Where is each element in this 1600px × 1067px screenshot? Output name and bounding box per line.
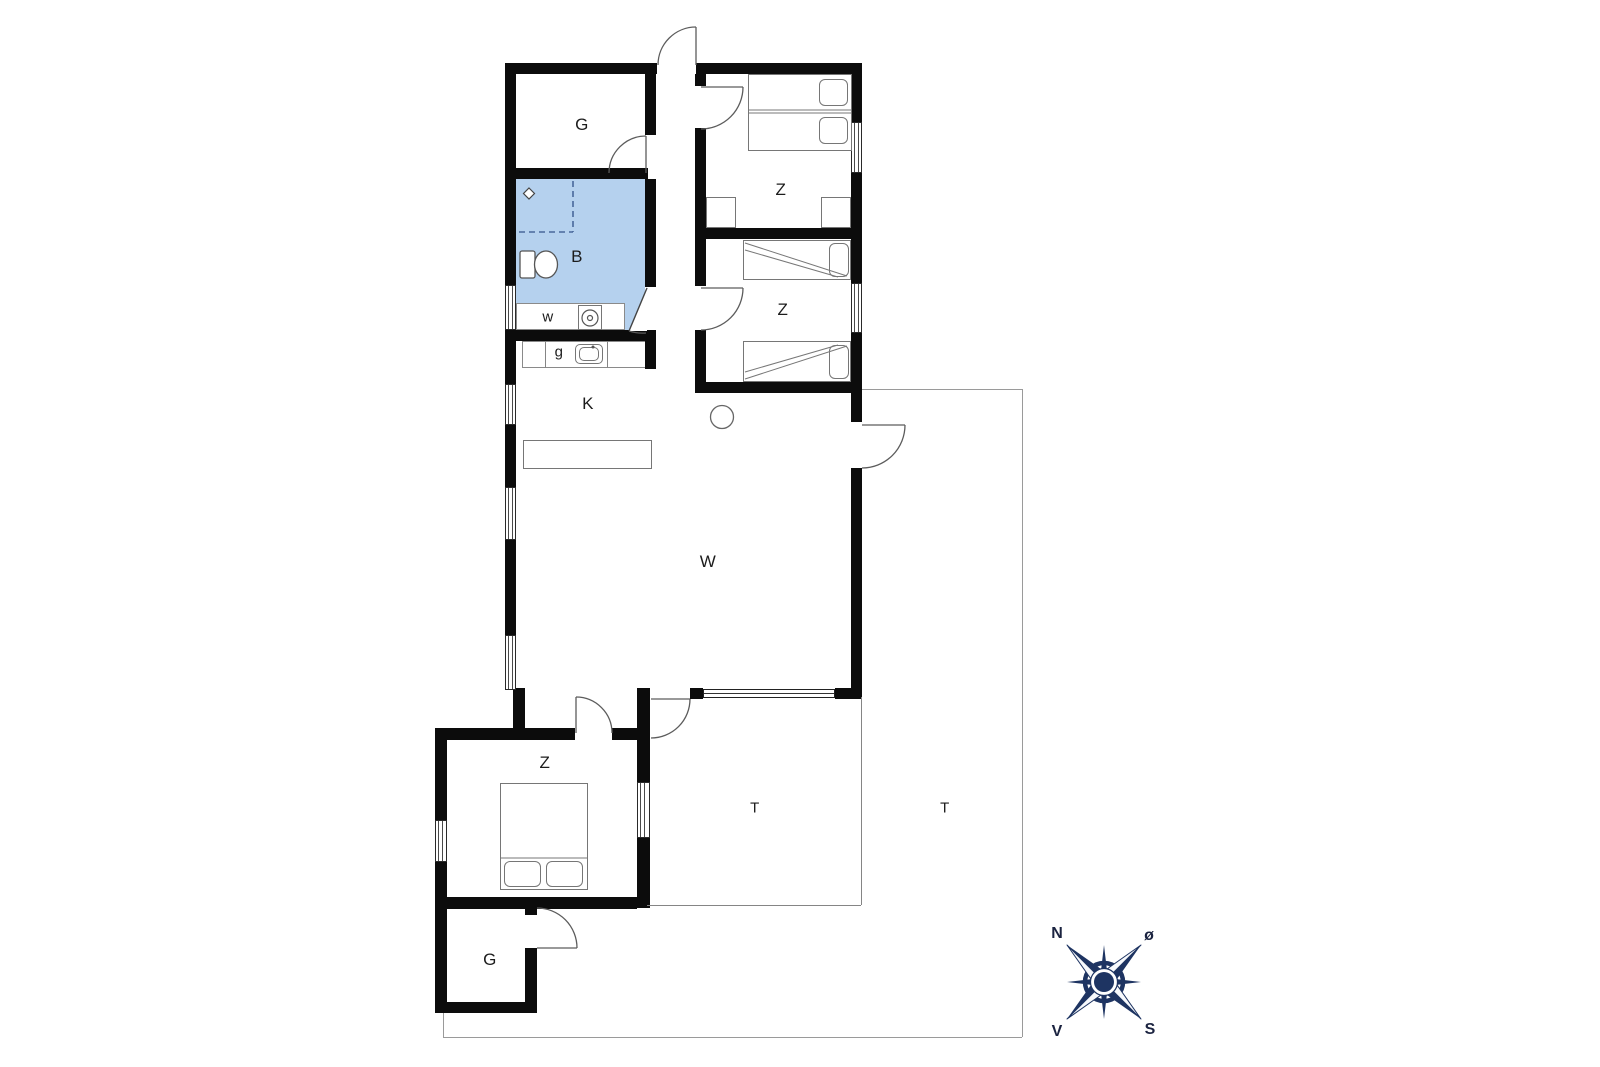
plot-boundary <box>443 1013 444 1037</box>
terrace-door-east <box>862 425 905 468</box>
window <box>505 635 516 690</box>
wall <box>435 909 447 1002</box>
compass-north-label: N <box>1051 925 1063 942</box>
compass-hub-ring <box>1091 969 1118 996</box>
stove-icon <box>711 406 734 429</box>
guest-wc-divider <box>545 341 546 368</box>
window <box>851 122 862 173</box>
wall <box>505 341 516 384</box>
compass-hub <box>1094 972 1114 992</box>
pillow <box>504 861 541 887</box>
wall <box>706 228 851 239</box>
room-label-storage-bottom: G <box>483 950 497 970</box>
wall <box>695 330 706 393</box>
compass-arms <box>1067 945 1141 1019</box>
room-label-terrace-covered: T <box>750 800 760 817</box>
wall <box>505 540 516 635</box>
plot-boundary <box>862 389 1022 390</box>
wall <box>645 179 656 287</box>
pillow <box>819 79 848 106</box>
window <box>505 285 516 330</box>
wall <box>637 838 650 908</box>
compass-rose: N ø V S <box>1051 925 1155 1040</box>
plot-boundary <box>1022 389 1023 1037</box>
bedroom-1-door <box>701 87 743 129</box>
wall <box>851 74 862 122</box>
room-label-bedroom-3: Z <box>540 753 551 773</box>
room-label-guest-wc: g <box>555 344 564 361</box>
wall <box>637 688 650 782</box>
pillow <box>546 861 583 887</box>
guest-wc-divider <box>607 341 608 368</box>
wardrobe <box>821 197 851 228</box>
room-label-kitchen: K <box>582 394 594 414</box>
wall <box>435 740 447 820</box>
sliding-door <box>703 689 835 698</box>
pillow <box>829 345 849 379</box>
room-label-bedroom-1: Z <box>776 180 787 200</box>
window <box>851 283 862 333</box>
pillow <box>819 117 848 144</box>
washing-machine <box>578 305 602 330</box>
window <box>505 384 516 425</box>
sink-basin <box>579 347 599 361</box>
wall <box>612 728 637 740</box>
wall <box>851 173 862 283</box>
wall <box>505 425 516 487</box>
compass-west-label: V <box>1052 1023 1063 1040</box>
wall <box>695 128 706 286</box>
room-label-storage-top: G <box>575 115 589 135</box>
entry-door <box>658 27 696 65</box>
wall <box>505 168 648 179</box>
wall <box>695 74 706 86</box>
wall <box>525 948 537 1002</box>
wall <box>851 333 862 422</box>
window <box>435 820 447 862</box>
window <box>505 487 516 540</box>
plan-linework: N ø V S <box>0 0 1600 1067</box>
compass-south-label: S <box>1145 1021 1156 1038</box>
room-label-bathroom: B <box>571 247 583 267</box>
floor-plan: N ø V S G Z B w g K Z W Z G T T <box>0 0 1600 1067</box>
wall <box>835 688 862 699</box>
wall <box>505 63 657 74</box>
terrace-edge <box>861 697 862 905</box>
wall <box>505 74 516 285</box>
window <box>637 782 650 838</box>
wall <box>690 688 703 699</box>
compass-spikes <box>1067 945 1141 1019</box>
bedroom-3-door <box>576 697 612 733</box>
wall <box>435 728 575 740</box>
wall <box>435 1002 537 1013</box>
compass-east-label: ø <box>1144 927 1154 944</box>
wall <box>851 468 862 688</box>
wardrobe <box>706 197 736 228</box>
room-label-terrace-open: T <box>940 800 950 817</box>
pillow <box>829 243 849 277</box>
wall <box>525 897 537 915</box>
room-label-bedroom-2: Z <box>778 300 789 320</box>
room-label-utility: w <box>542 309 553 326</box>
kitchen-counter <box>523 440 652 469</box>
wall <box>696 63 862 74</box>
terrace-door-south <box>651 699 690 738</box>
plot-boundary <box>443 1037 1022 1038</box>
wall <box>706 382 851 393</box>
wall <box>505 330 656 341</box>
room-label-living-room: W <box>700 552 717 572</box>
compass-ring <box>1085 963 1123 1001</box>
bedroom-2-door <box>701 288 743 330</box>
storage-bottom-door <box>537 908 577 948</box>
terrace-edge <box>647 905 861 906</box>
wall <box>645 74 656 135</box>
compass-labels: N ø V S <box>1051 925 1155 1040</box>
utility-strip <box>516 303 625 330</box>
wall <box>435 862 447 897</box>
